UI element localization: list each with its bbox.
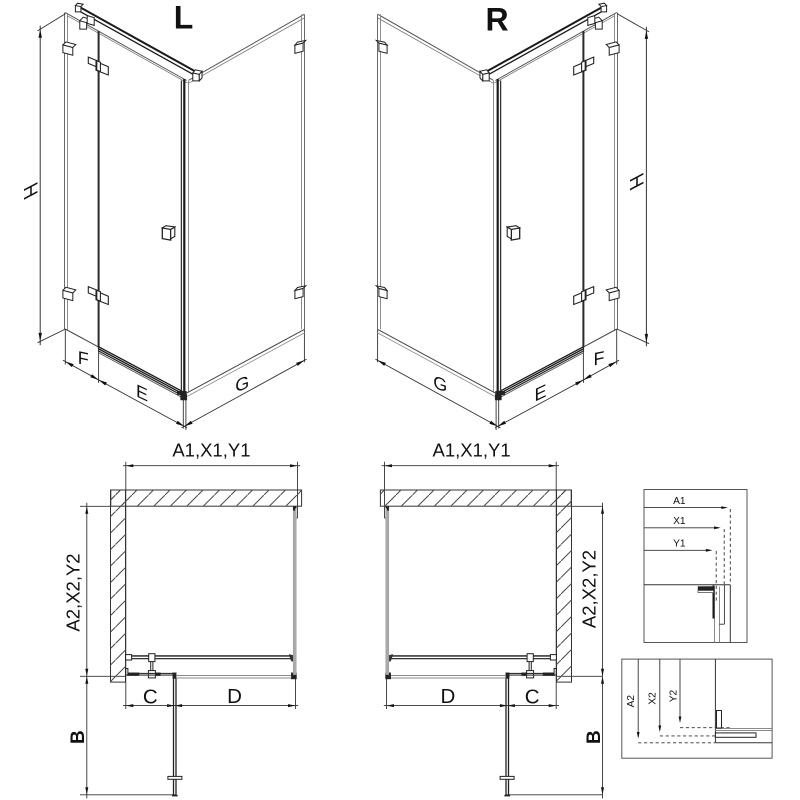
svg-text:A2,X2,Y2: A2,X2,Y2 [63,553,84,631]
svg-text:A1: A1 [673,496,686,507]
svg-text:F: F [78,348,89,370]
svg-text:A2: A2 [626,695,637,708]
svg-text:X1: X1 [673,516,686,527]
svg-text:A1,X1,Y1: A1,X1,Y1 [172,440,250,461]
svg-text:A1,X1,Y1: A1,X1,Y1 [433,440,511,461]
svg-text:F: F [593,348,604,370]
svg-text:C: C [525,685,540,708]
svg-text:C: C [143,685,158,708]
svg-text:R: R [485,1,508,37]
svg-text:Y1: Y1 [673,539,686,550]
svg-text:D: D [227,685,242,708]
svg-text:B: B [584,730,605,744]
svg-text:L: L [174,0,194,35]
svg-text:D: D [440,685,455,708]
svg-text:A2,X2,Y2: A2,X2,Y2 [579,550,600,628]
svg-text:Y2: Y2 [668,689,679,702]
svg-text:B: B [68,730,89,744]
svg-text:X2: X2 [647,692,658,705]
